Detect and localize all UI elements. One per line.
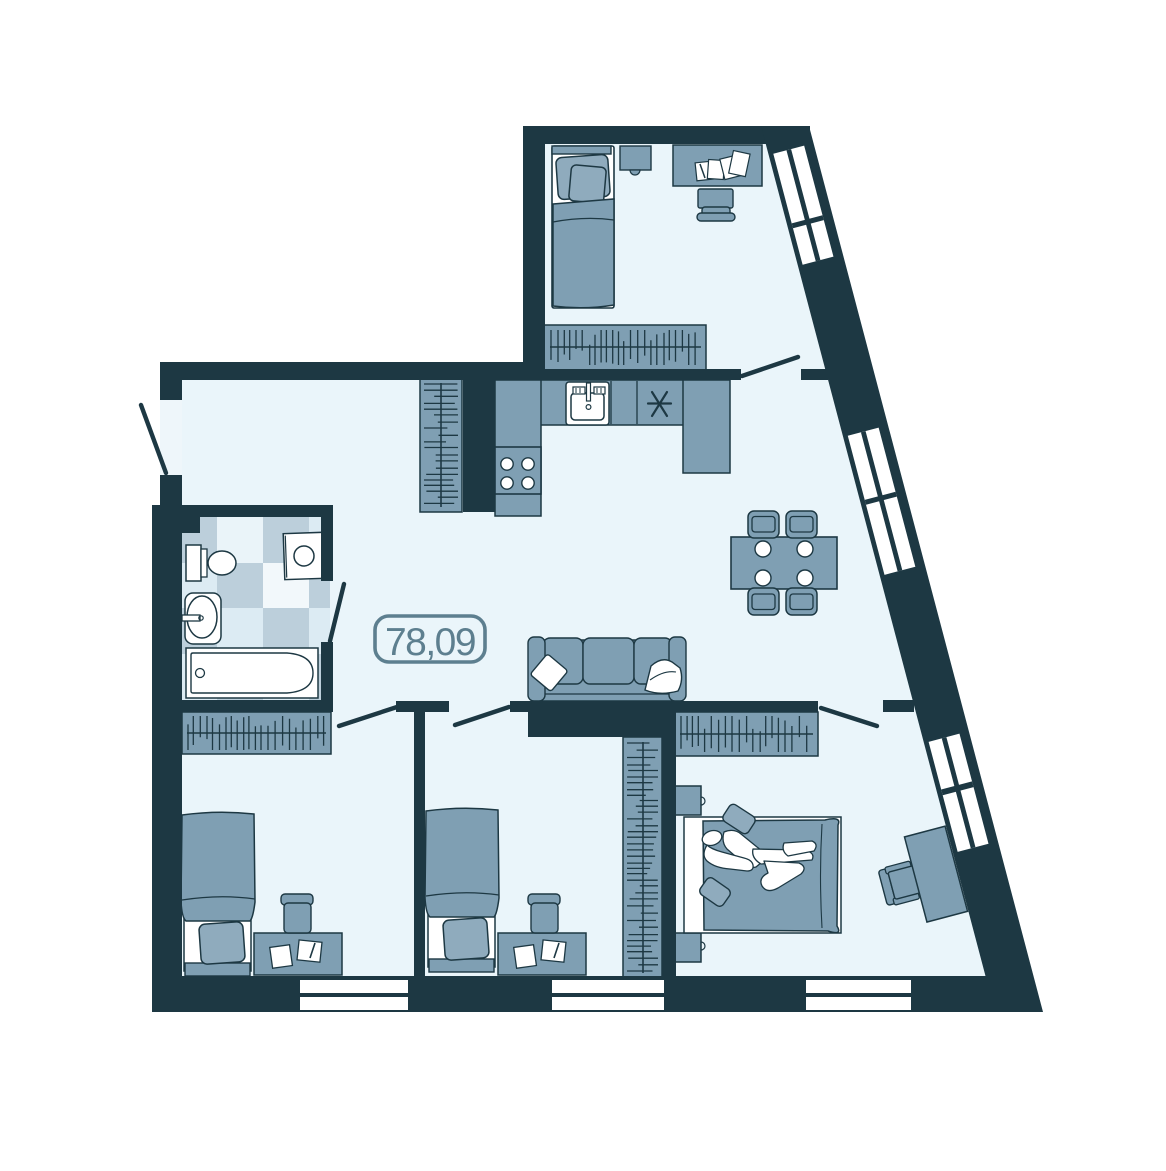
svg-text:78,09: 78,09	[385, 621, 475, 664]
